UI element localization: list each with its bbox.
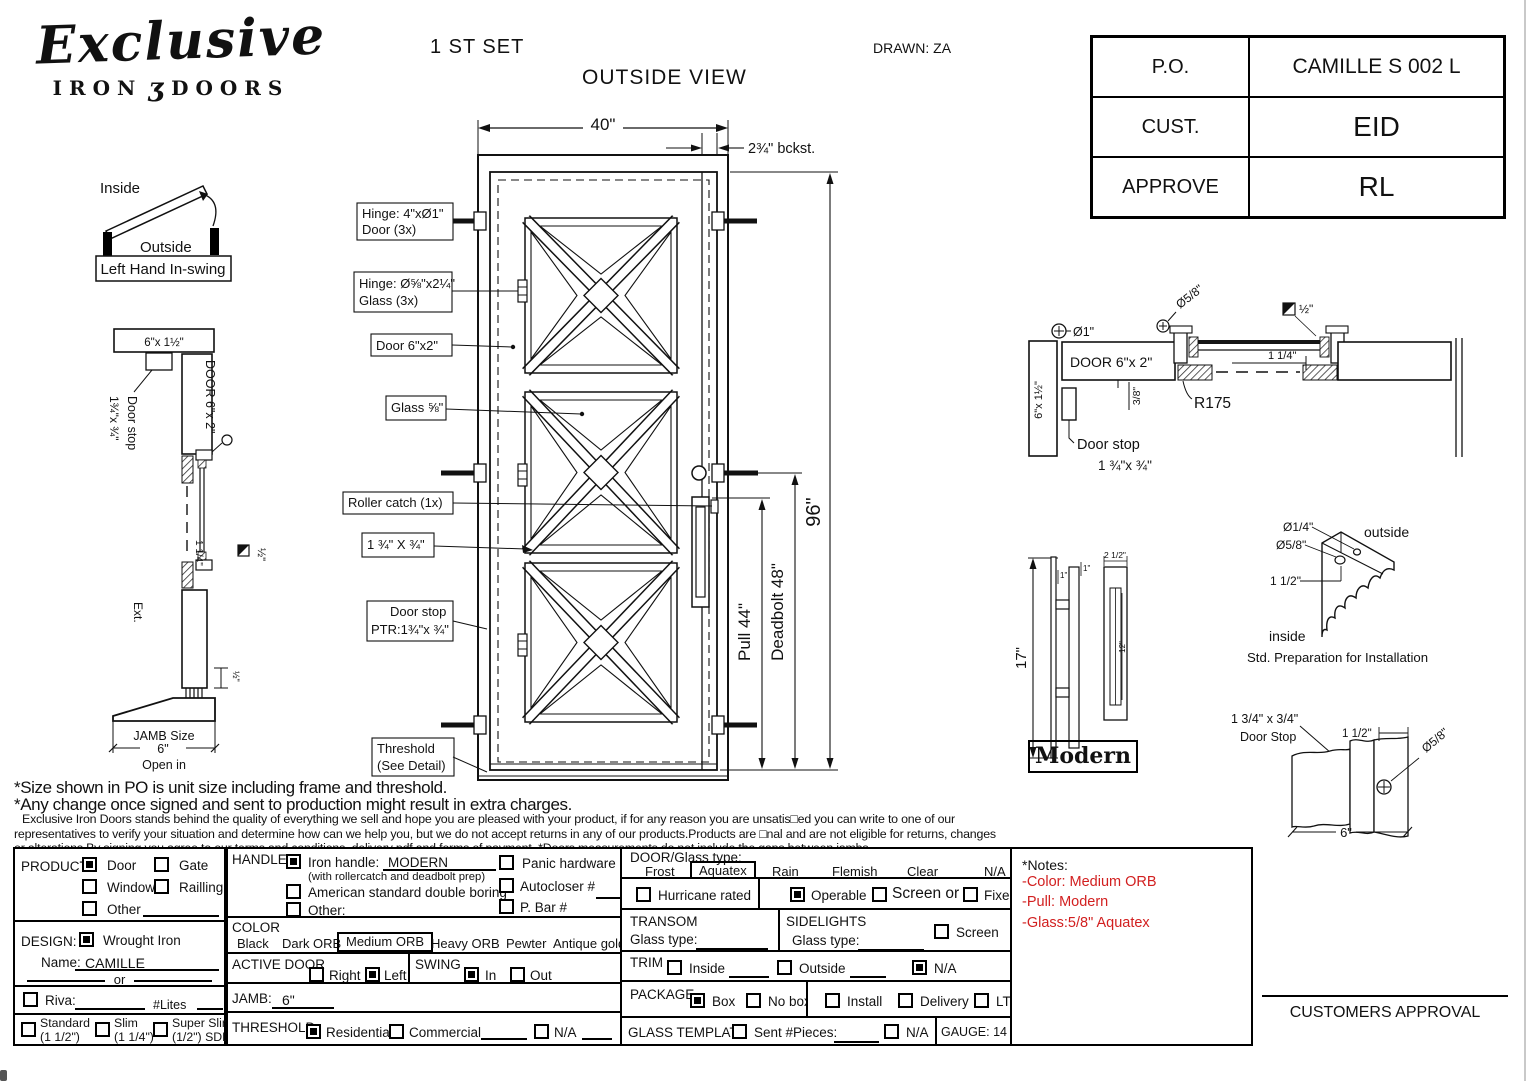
approval-signature-line[interactable] <box>1262 995 1508 997</box>
handle-label: HANDLE <box>232 852 287 867</box>
active-door-section: ACTIVE DOOR Right Left <box>226 952 410 984</box>
callout-threshold-1: Threshold <box>377 741 435 756</box>
stop-name-label: Door Stop <box>1240 730 1296 744</box>
handle-inner-dim: 12" <box>1118 641 1127 653</box>
head-door-stop-size: 1 ¾"x ¾" <box>1098 458 1152 473</box>
trim-label: TRIM <box>630 955 663 970</box>
swing-out-checkbox[interactable] <box>510 967 525 982</box>
delivery-label: Delivery <box>920 994 969 1009</box>
section-door-stop-label: Door stop <box>125 396 139 450</box>
scan-edge-line <box>1524 0 1526 1081</box>
riva-section: Riva: #Lites <box>13 985 226 1015</box>
trim-section: TRIM Inside Outside N/A <box>620 950 1012 982</box>
width-dim-label: 40" <box>591 115 616 134</box>
handle-other-checkbox[interactable] <box>286 902 301 917</box>
handle-section: HANDLE Iron handle: MODERN (with rollerc… <box>226 847 622 918</box>
deadbolt-knob <box>692 466 706 480</box>
color-dark-orb[interactable]: Dark ORB <box>282 936 341 951</box>
transom-glass-field[interactable] <box>696 938 768 950</box>
open-in-label: Open in <box>142 758 186 772</box>
swing-out-label: Out <box>530 968 552 983</box>
threshold-commercial-label: Commercial <box>409 1025 481 1040</box>
screen-or-label: Screen or <box>892 885 959 903</box>
product-window-checkbox[interactable] <box>82 879 97 894</box>
color-medium-orb-selected[interactable]: Medium ORB <box>337 932 433 952</box>
jamb-label: JAMB: <box>232 991 272 1006</box>
stop-dim6-label: 6" <box>1340 825 1352 840</box>
logo-doors: DOORS <box>171 76 289 100</box>
lites-field[interactable] <box>197 998 223 1010</box>
trim-inside-label: Inside <box>689 961 725 976</box>
product-door-label: Door <box>107 858 136 873</box>
pbar-label: P. Bar # <box>520 900 567 915</box>
riva-checkbox[interactable] <box>23 992 38 1007</box>
transom-glass-label: Glass type: <box>630 932 698 947</box>
glass-type-section: DOOR/Glass type: Frost Aquatex Rain Flem… <box>620 847 1012 879</box>
operable-label: Operable <box>811 888 867 903</box>
trim-outside-label: Outside <box>799 961 846 976</box>
threshold-na-label: N/A <box>554 1025 577 1040</box>
iron-handle-checkbox[interactable] <box>286 854 301 869</box>
cust-label: CUST. <box>1092 97 1249 157</box>
trim-inside-field[interactable] <box>729 966 769 978</box>
prep-inside-label: inside <box>1269 628 1306 644</box>
product-gate-label: Gate <box>179 858 208 873</box>
section-door-label: DOOR 6"x 2" <box>203 360 217 433</box>
notes-box: *Notes: -Color: Medium ORB -Pull: Modern… <box>1010 847 1253 1046</box>
super-slim-label: Super Slim <box>172 1016 232 1030</box>
product-railling-checkbox[interactable] <box>154 879 169 894</box>
callout-hinge-door-1: Hinge: 4"xØ1" <box>362 206 444 221</box>
jamb-section: JAMB: 6" <box>226 982 622 1013</box>
logo-iron: IRON <box>53 76 143 100</box>
jamb-size-value: 6" <box>157 742 168 756</box>
handle-width-dim: 2 1/2" <box>1104 550 1126 560</box>
design-wrought-label: Wrought Iron <box>103 933 181 948</box>
frame-type-section: Standard (1 1/2") Slim (1 1/4") Super Sl… <box>13 1013 226 1046</box>
standard-sub-label: (1 1/2") <box>40 1030 80 1044</box>
operable-section: Operable Screen or Fixed <box>758 877 1012 910</box>
dia58-label: Ø5/8" <box>1173 282 1205 312</box>
jamb-vertical-section: 6"x 1½" Door stop 1¾"x ¾" DOOR 6"x 2" 1 … <box>88 318 258 780</box>
product-section: PRODUCT: Door Gate Window Railling Other <box>13 847 226 922</box>
head-door-stop-label: Door stop <box>1077 437 1140 453</box>
jamb-field[interactable] <box>272 997 334 1009</box>
riva-field[interactable] <box>75 998 145 1010</box>
handle-height-dim: 17" <box>1013 647 1030 669</box>
swing-in-checkbox[interactable] <box>464 967 479 982</box>
gauge-section: GAUGE: 14 <box>935 1016 1012 1046</box>
half-sq-label: ½" <box>1299 302 1313 316</box>
r175-label: R175 <box>1194 395 1231 412</box>
std-prep-detail: Ø1/4" Ø5/8" 1 1/2" outside inside Std. P… <box>1245 500 1535 670</box>
package-section: PACKAGE Box No box <box>620 980 808 1018</box>
package-box-checkbox[interactable] <box>690 993 705 1008</box>
prep-outside-label: outside <box>1364 524 1409 540</box>
package-label: PACKAGE <box>630 987 694 1002</box>
slim-sub-label: (1 1/4") <box>114 1030 154 1044</box>
door-stop-detail: 1 3/4" x 3/4" Door Stop 1 1/2" Ø5/8" 6" <box>1225 690 1535 855</box>
design-wrought-checkbox[interactable] <box>79 932 94 947</box>
threshold-residential-label: Residential <box>326 1025 393 1040</box>
template-na-checkbox[interactable] <box>884 1024 899 1039</box>
standard-checkbox[interactable] <box>21 1022 36 1037</box>
height-dim-label: 96" <box>803 497 825 526</box>
po-table: P.O. CAMILLE S 002 L CUST. EID APPROVE R… <box>1090 35 1506 219</box>
hurricane-label: Hurricane rated <box>658 888 751 903</box>
approval-label: CUSTOMERS APPROVAL <box>1262 1004 1508 1022</box>
head-jamb-label: 6"x 1½" <box>144 337 184 349</box>
dia1-label: Ø1" <box>1073 325 1094 339</box>
section-ext-label: Ext. <box>131 602 145 623</box>
notes-pull: -Pull: Modern <box>1022 894 1108 910</box>
delivery-checkbox[interactable] <box>898 993 913 1008</box>
slim-checkbox[interactable] <box>95 1022 110 1037</box>
package-box-label: Box <box>712 994 735 1009</box>
threshold-na-field[interactable] <box>582 1028 612 1040</box>
handle-dim-1a: 1" <box>1060 571 1067 580</box>
color-black[interactable]: Black <box>237 936 269 951</box>
swing-outside-label: Outside <box>140 239 192 256</box>
install-label: Install <box>847 994 882 1009</box>
iron-handle-sub: (with rollercatch and deadbolt prep) <box>308 871 485 883</box>
lites-label: #Lites <box>153 998 186 1012</box>
delivery-section: Install Delivery LTL <box>806 980 1012 1018</box>
swing-diagram: Inside Outside Left Hand In-swing <box>83 168 253 290</box>
trim-outside-field[interactable] <box>850 966 886 978</box>
hurricane-section: Hurricane rated <box>620 877 760 910</box>
product-railling-label: Railling <box>179 880 223 895</box>
jamb-size-label: JAMB Size <box>133 729 194 743</box>
notes-glass: -Glass:5/8" Aquatex <box>1022 915 1150 931</box>
hurricane-checkbox[interactable] <box>636 887 651 902</box>
active-right-label: Right <box>329 968 361 983</box>
footnote-4: representatives to verify your situation… <box>14 827 996 841</box>
threshold-residential-checkbox[interactable] <box>306 1024 321 1039</box>
company-logo: Exclusive IRON ʒ DOORS <box>36 10 356 103</box>
color-pewter[interactable]: Pewter <box>506 936 546 951</box>
threshold-commercial-checkbox[interactable] <box>389 1024 404 1039</box>
template-na-label: N/A <box>906 1025 929 1040</box>
panic-hardware-label: Panic hardware <box>522 856 616 871</box>
callout-door: Door 6"x2" <box>376 338 438 353</box>
swing-section: SWING In Out <box>408 952 622 984</box>
super-slim-sub-label: (1/2") SDL <box>172 1030 229 1044</box>
product-gate-checkbox[interactable] <box>154 857 169 872</box>
gauge-label: GAUGE: 14 <box>941 1025 1007 1039</box>
sidelights-section: SIDELIGHTS Glass type: Screen <box>778 908 1012 952</box>
riva-label: Riva: <box>45 993 76 1008</box>
sent-pieces-checkbox[interactable] <box>732 1024 747 1039</box>
drawn-by-label: DRAWN: ZA <box>873 40 951 56</box>
design-section: DESIGN: Wrought Iron Name: CAMILLE or <box>13 920 226 987</box>
transom-label: TRANSOM <box>630 914 698 929</box>
color-heavy-orb[interactable]: Heavy ORB <box>431 936 500 951</box>
color-label: COLOR <box>232 920 280 935</box>
trim-na-checkbox[interactable] <box>912 960 927 975</box>
iron-handle-label: Iron handle: <box>308 855 379 870</box>
operable-checkbox[interactable] <box>790 887 805 902</box>
product-other-label: Other <box>107 902 141 917</box>
sent-pieces-field[interactable] <box>834 1031 879 1043</box>
trim-outside-checkbox[interactable] <box>777 960 792 975</box>
notes-color: -Color: Medium ORB <box>1022 874 1157 890</box>
ltl-checkbox[interactable] <box>974 993 989 1008</box>
autocloser-checkbox[interactable] <box>499 878 514 893</box>
po-label: P.O. <box>1092 37 1249 97</box>
package-nobox-checkbox[interactable] <box>746 993 761 1008</box>
design-name-field[interactable] <box>75 959 219 971</box>
stop-dim112-label: 1 1/2" <box>1342 728 1372 740</box>
autocloser-field[interactable] <box>596 887 622 899</box>
stop-size-label: 1 3/4" x 3/4" <box>1231 712 1298 726</box>
swing-inside-label: Inside <box>100 180 140 197</box>
glass-template-section: GLASS TEMPLATE Sent #Pieces: N/A <box>620 1016 937 1046</box>
autocloser-label: Autocloser # <box>520 879 595 894</box>
scan-smudge <box>0 1070 7 1081</box>
notes-title: *Notes: <box>1022 857 1068 873</box>
callout-hinge-glass-1: Hinge: Ø⅝"x2¼" <box>359 276 455 291</box>
color-section: COLOR Black Dark ORB Medium ORB Heavy OR… <box>226 916 622 954</box>
product-door-checkbox[interactable] <box>82 857 97 872</box>
wall-size-label: 6"x 1½" <box>1033 381 1045 419</box>
section-dim-half-sq: ½" <box>255 548 267 561</box>
sent-pieces-label: Sent #Pieces: <box>754 1025 837 1040</box>
head-door-label: DOOR 6"x 2" <box>1070 354 1152 370</box>
transom-section: TRANSOM Glass type: <box>620 908 780 952</box>
backset-dim-label: 2¾" bckst. <box>748 141 815 157</box>
prep-caption: Std. Preparation for Installation <box>1247 650 1428 665</box>
dim-114-label: 1 1/4" <box>1268 350 1296 362</box>
american-boring-label: American standard double boring <box>308 885 507 900</box>
prep-dia58-label: Ø5/8" <box>1276 538 1306 552</box>
prep-dia14-label: Ø1/4" <box>1283 520 1313 534</box>
product-label: PRODUCT: <box>21 859 90 874</box>
color-antique-gold[interactable]: Antique gold <box>553 936 625 951</box>
threshold-section: THRESHOLD Residential Commercial N/A <box>226 1011 622 1046</box>
fixed-checkbox[interactable] <box>963 887 978 902</box>
american-boring-checkbox[interactable] <box>286 884 301 899</box>
product-window-label: Window <box>107 880 155 895</box>
sidelights-label: SIDELIGHTS <box>786 914 866 929</box>
sidelights-screen-checkbox[interactable] <box>934 924 949 939</box>
logo-ornament-icon: ʒ <box>148 73 165 103</box>
deadbolt-dim-label: Deadbolt 48" <box>768 563 787 661</box>
approve-value: RL <box>1249 157 1504 217</box>
footnote-3: Exclusive Iron Doors stands behind the q… <box>22 812 955 826</box>
section-door-stop-size: 1¾"x ¾" <box>107 396 121 441</box>
swing-caption: Left Hand In-swing <box>100 261 225 278</box>
drawing-sheet: Exclusive IRON ʒ DOORS 1 ST SET OUTSIDE … <box>0 0 1536 1081</box>
callout-glass: Glass ⅝" <box>391 400 444 415</box>
product-other-field[interactable] <box>143 905 219 917</box>
install-checkbox[interactable] <box>825 993 840 1008</box>
door-elevation: 40" 2¾" bckst. <box>340 108 845 792</box>
swing-label: SWING <box>415 957 461 972</box>
section-dim-half: ½" <box>231 671 241 682</box>
set-label: 1 ST SET <box>430 36 524 59</box>
trim-inside-checkbox[interactable] <box>667 960 682 975</box>
callout-door-stop-1: Door stop <box>390 604 446 619</box>
section-dim-1-1-4: 1 1/4" <box>193 540 204 566</box>
handle-style-caption: Modern <box>1028 740 1138 773</box>
logo-script-text: Exclusive <box>35 4 357 76</box>
threshold-commercial-field[interactable] <box>481 1028 527 1040</box>
callout-door-stop-2: PTR:1¾"x ¾" <box>371 622 449 637</box>
pbar-checkbox[interactable] <box>499 899 514 914</box>
pull-dim-label: Pull 44" <box>735 603 754 661</box>
screen-checkbox[interactable] <box>872 887 887 902</box>
panic-hardware-checkbox[interactable] <box>499 855 514 870</box>
super-slim-checkbox[interactable] <box>153 1022 168 1037</box>
threshold-na-checkbox[interactable] <box>534 1024 549 1039</box>
cust-value: EID <box>1249 97 1504 157</box>
roller-catch <box>711 500 718 513</box>
stop-dia58-label: Ø5/8" <box>1419 725 1451 755</box>
product-other-checkbox[interactable] <box>82 901 97 916</box>
threshold-label: THRESHOLD <box>232 1020 315 1035</box>
dim-38-label: 3/8" <box>1131 387 1143 406</box>
standard-label: Standard <box>40 1016 90 1030</box>
swing-in-label: In <box>485 968 496 983</box>
view-title: OUTSIDE VIEW <box>582 66 747 90</box>
sidelights-glass-label: Glass type: <box>792 933 860 948</box>
iron-handle-field[interactable] <box>383 859 496 871</box>
sidelights-screen-label: Screen <box>956 925 999 940</box>
po-value: CAMILLE S 002 L <box>1249 37 1504 97</box>
callout-stile: 1 ¾" X ¾" <box>367 537 425 552</box>
callout-roller: Roller catch (1x) <box>348 495 443 510</box>
active-left-label: Left <box>384 968 407 983</box>
package-nobox-label: No box <box>768 994 811 1009</box>
prep-dim112-label: 1 1/2" <box>1270 574 1301 588</box>
active-left-checkbox[interactable] <box>365 967 380 982</box>
callout-threshold-2: (See Detail) <box>377 758 446 773</box>
active-right-checkbox[interactable] <box>309 967 324 982</box>
approve-label: APPROVE <box>1092 157 1249 217</box>
callout-hinge-door-2: Door (3x) <box>362 222 416 237</box>
glass-template-label: GLASS TEMPLATE <box>628 1025 747 1040</box>
handle-dim-1b: 1" <box>1083 564 1090 573</box>
design-label: DESIGN: <box>21 934 77 949</box>
header-section-detail: 6"x 1½" Ø1" DOOR 6"x 2" 3/8" Door stop 1… <box>1005 288 1480 483</box>
callout-hinge-glass-2: Glass (3x) <box>359 293 418 308</box>
trim-na-label: N/A <box>934 961 957 976</box>
slim-label: Slim <box>114 1016 138 1030</box>
